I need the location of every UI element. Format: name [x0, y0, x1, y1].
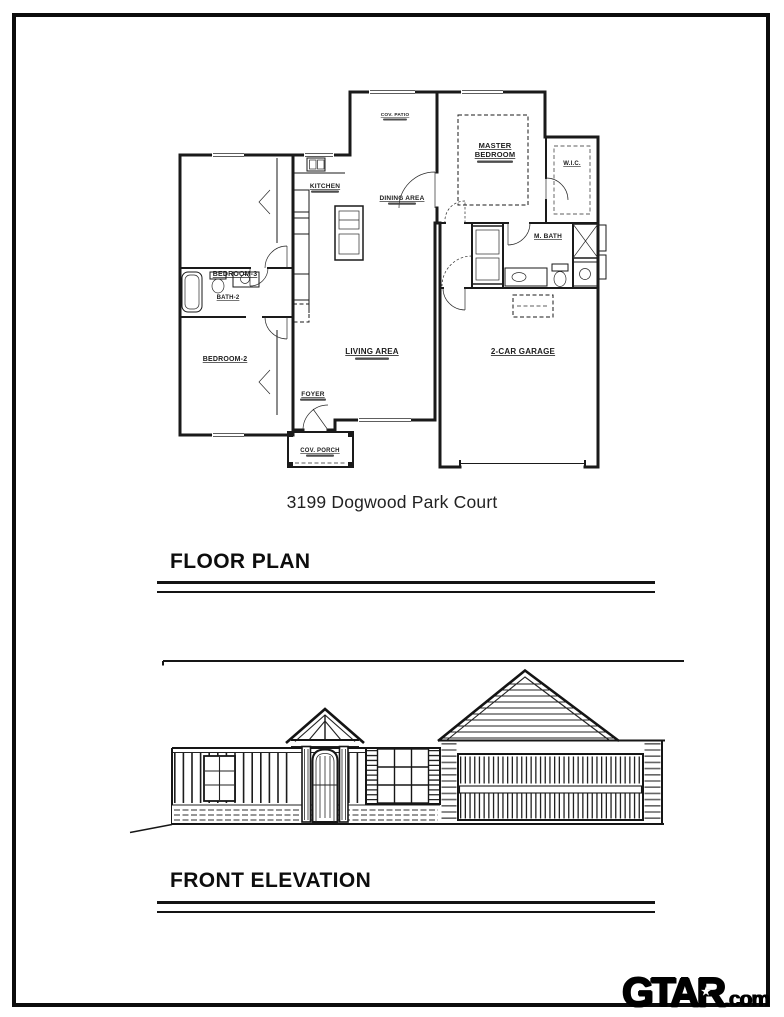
label-master-line1: MASTER — [479, 141, 512, 150]
gtar-tld-text: .com — [724, 988, 769, 1012]
gtar-watermark: GTAR ★ .com — [622, 972, 784, 1017]
floor-plan-drawing: BEDROOM-3 KITCHEN DINING AREA MASTER BED… — [165, 78, 625, 478]
label-wic: W.I.C. — [563, 161, 581, 167]
label-living-area: LIVING AREA — [345, 347, 398, 356]
label-foyer: FOYER — [301, 391, 324, 398]
front-elevation-rule — [157, 901, 655, 913]
label-cov-porch: COV. PORCH — [300, 448, 339, 454]
label-bedroom3: BEDROOM-3 — [213, 271, 258, 278]
floor-plan-rule — [157, 581, 655, 593]
document-page: BEDROOM-3 KITCHEN DINING AREA MASTER BED… — [0, 0, 784, 1017]
label-cov-patio: COV. PATIO — [381, 112, 410, 118]
address-title: 3199 Dogwood Park Court — [0, 492, 784, 513]
label-mbath: M. BATH — [534, 233, 562, 240]
star-icon: ★ — [701, 987, 711, 998]
front-elevation-heading: FRONT ELEVATION — [170, 869, 371, 893]
label-bath2: BATH-2 — [217, 295, 240, 301]
front-elevation-drawing — [128, 648, 685, 858]
label-dining-area: DINING AREA — [380, 195, 425, 202]
label-garage: 2-CAR GARAGE — [491, 347, 556, 356]
label-master-line2: BEDROOM — [475, 150, 516, 159]
label-bedroom2: BEDROOM-2 — [203, 356, 248, 363]
label-kitchen: KITCHEN — [310, 183, 340, 190]
floor-plan-heading: FLOOR PLAN — [170, 550, 311, 574]
